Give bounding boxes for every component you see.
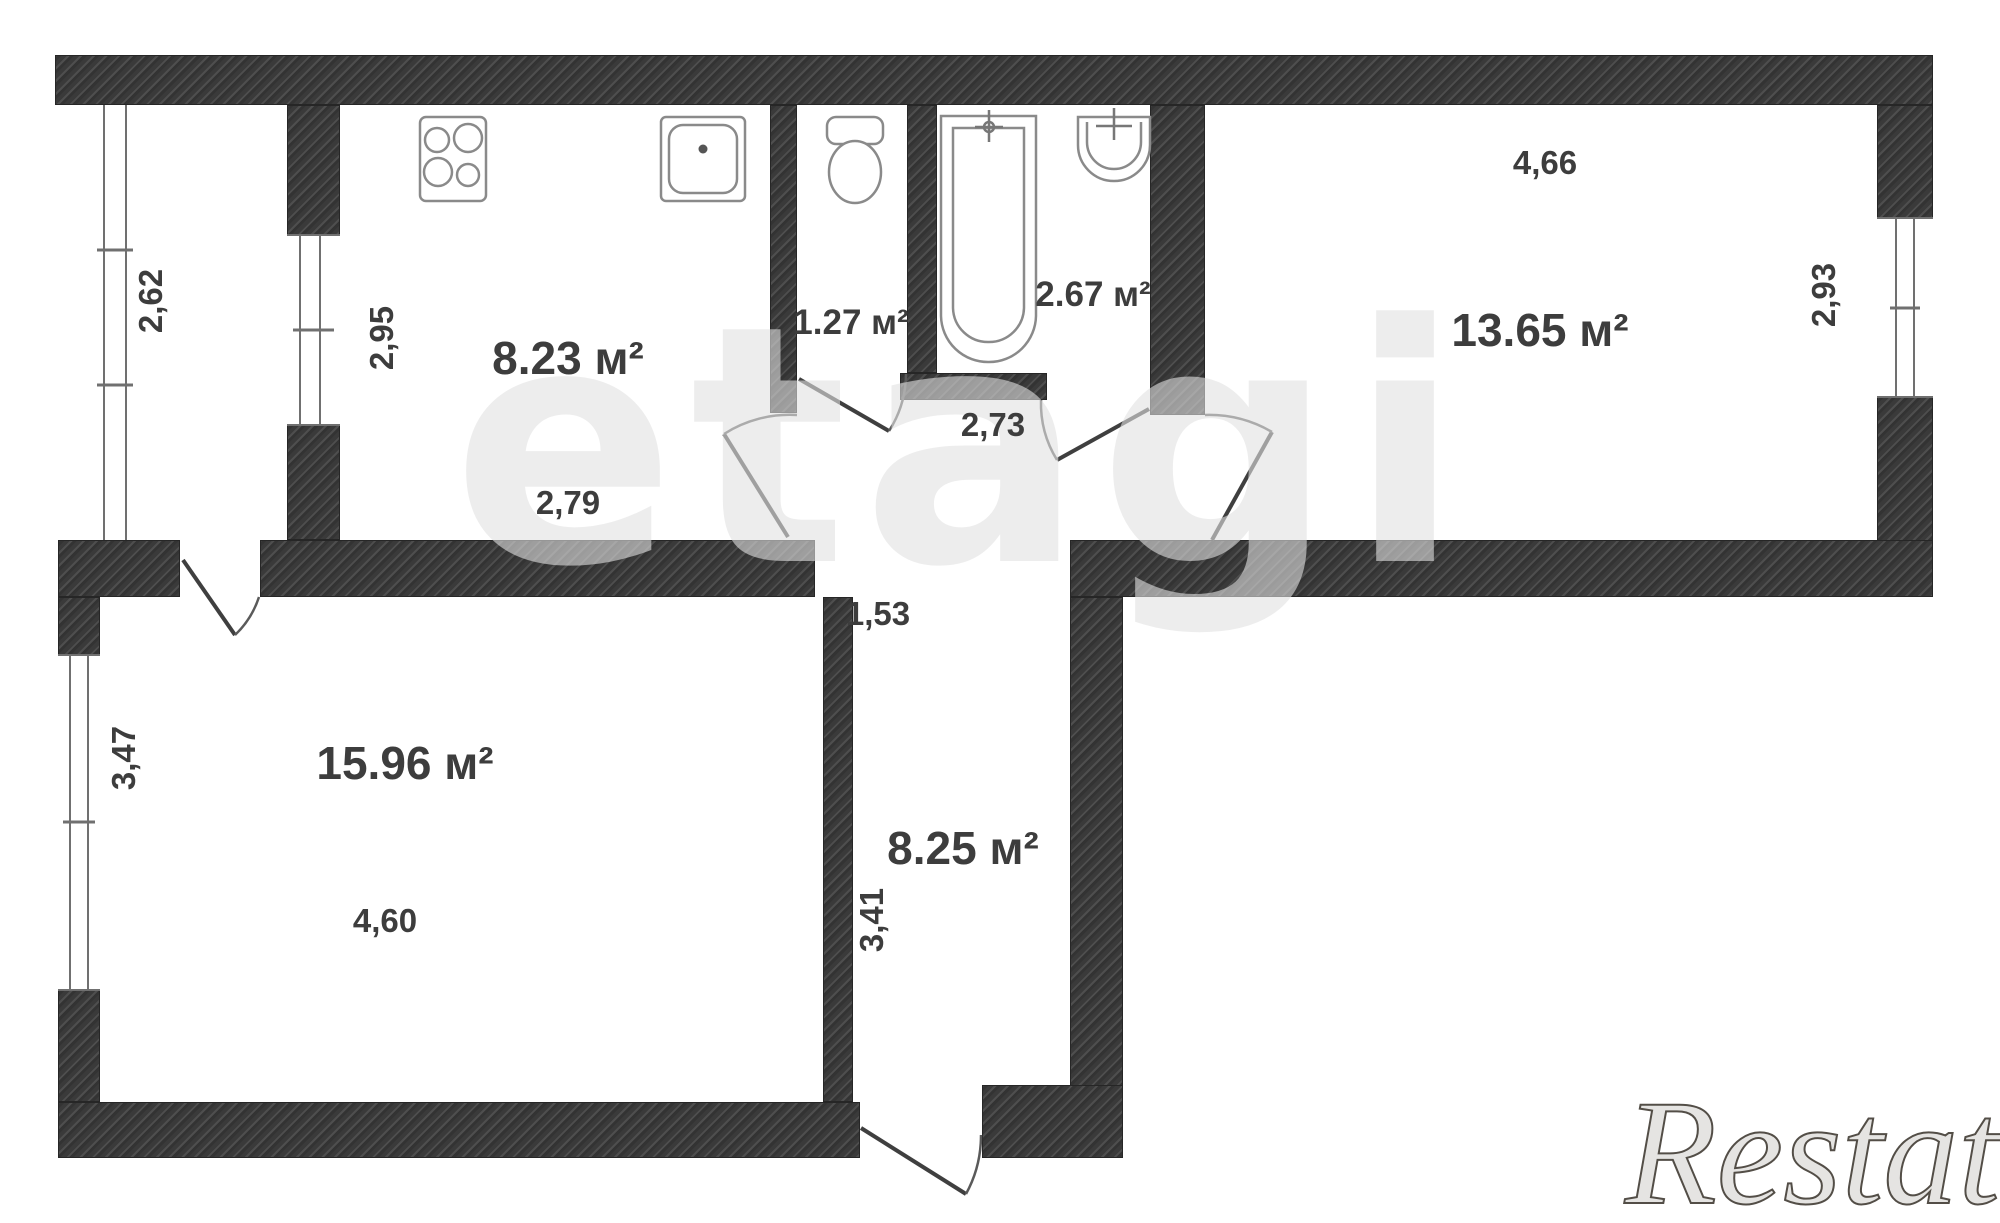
kitchen-area-label: 8.23 м² [492, 331, 644, 385]
corridor-width-label: 2,73 [961, 406, 1025, 444]
hall-area-label: 8.25 м² [887, 821, 1039, 875]
wc-area-label: 1.27 м² [793, 303, 908, 343]
room-right-depth-label: 2,93 [1805, 263, 1843, 327]
living-width-label: 4,60 [353, 902, 417, 940]
living-depth-label: 3,47 [105, 726, 143, 790]
kitchen-depth-label: 2,95 [363, 306, 401, 370]
living-window-icon [58, 655, 100, 990]
restate-watermark: Restate [1625, 1078, 2000, 1223]
hall-opening-label: 1,53 [846, 595, 910, 633]
living-area-label: 15.96 м² [316, 736, 493, 790]
room-right-width-label: 4,66 [1513, 144, 1577, 182]
balcony-door-icon [183, 560, 259, 635]
washbasin-icon [1078, 108, 1150, 181]
stove-icon [420, 117, 486, 201]
toilet-icon [827, 117, 883, 203]
bath-area-label: 2.67 м² [1035, 275, 1150, 315]
kitchen-sink-icon [661, 117, 745, 201]
balcony-length-label: 2,62 [132, 269, 170, 333]
entrance-door-icon [861, 1128, 981, 1194]
balcony-glazing-icon [97, 105, 133, 540]
kitchen-window-icon [287, 235, 340, 425]
room-right-window-icon [1877, 218, 1933, 397]
floor-plan: etagi Restate 2,62 2,95 8.23 м² 2,79 1.2… [0, 0, 2000, 1223]
room-right-area-label: 13.65 м² [1451, 303, 1628, 357]
kitchen-width-label: 2,79 [536, 484, 600, 522]
hall-depth-label: 3,41 [853, 888, 891, 952]
